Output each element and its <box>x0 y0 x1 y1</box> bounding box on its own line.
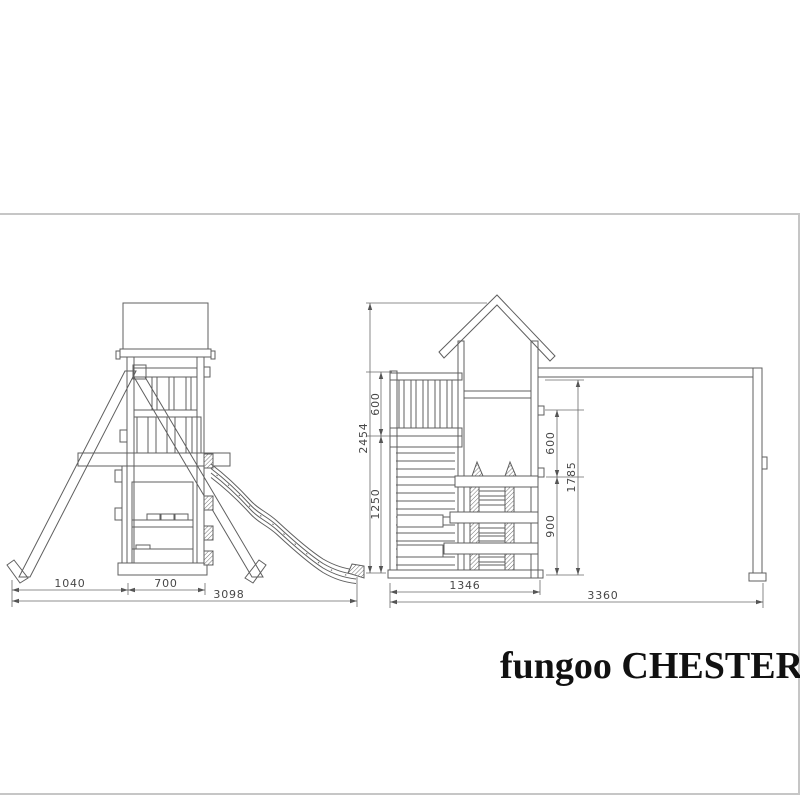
dim-front-width-tower: 1346 <box>449 579 480 592</box>
dim-front-height-total: 2454 <box>357 422 370 453</box>
dim-front-height-railing: 600 <box>369 392 382 415</box>
dimensions-front-view: 2454 600 1250 600 900 1785 1346 3360 <box>357 303 763 608</box>
front-ladder <box>444 462 538 570</box>
dim-front-width-total: 3360 <box>587 589 618 602</box>
dim-front-height-platform: 1250 <box>369 488 382 519</box>
dim-side-base-left: 1040 <box>54 577 85 590</box>
front-swing-beam <box>538 368 762 377</box>
front-swing-leg <box>749 368 767 581</box>
dim-side-base-total: 3098 <box>213 588 244 601</box>
handle-grip <box>505 462 516 476</box>
front-base <box>388 570 543 578</box>
side-slide <box>211 464 364 584</box>
side-ladder-rungs <box>204 454 213 565</box>
handle-grip <box>472 462 483 476</box>
brand-name: fungoo <box>500 645 612 687</box>
front-climbing-annex <box>390 371 462 570</box>
slide-end-lip <box>348 564 364 578</box>
front-view <box>388 295 767 581</box>
page: 1040 700 3098 <box>0 0 800 800</box>
dim-front-beam-clearance: 1785 <box>565 461 578 492</box>
side-view <box>7 303 364 584</box>
dim-front-inner-lower: 900 <box>544 514 557 537</box>
brand-model: CHESTER <box>621 645 800 687</box>
side-tower-posts <box>127 357 204 563</box>
dim-side-base-tower: 700 <box>154 577 177 590</box>
brand-title: fungoo CHESTER <box>500 646 796 688</box>
side-sandbox-cabin <box>115 466 207 575</box>
dim-front-inner-upper: 600 <box>544 431 557 454</box>
side-roof <box>116 303 215 359</box>
dimensions-side-view: 1040 700 3098 <box>12 577 357 607</box>
